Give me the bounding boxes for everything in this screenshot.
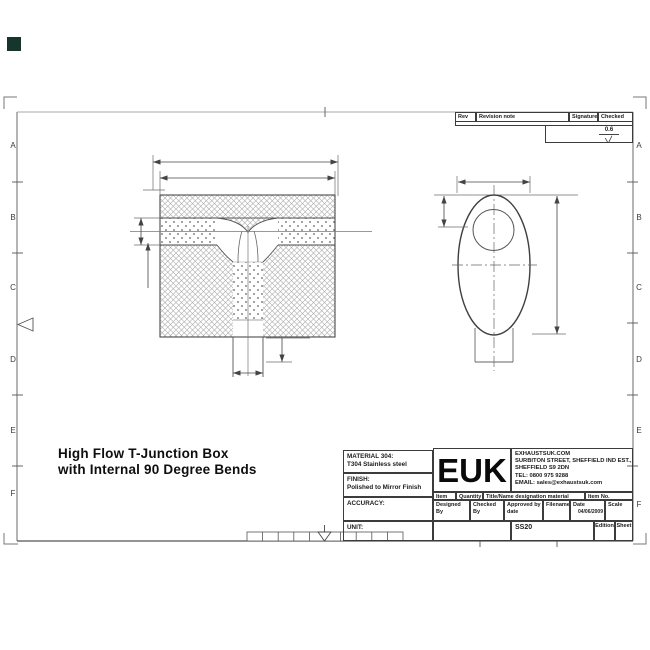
tolerance-box: 0.6 bbox=[545, 126, 633, 143]
date-cell: Date 04/06/2009 bbox=[570, 500, 605, 521]
drawing-number: SS20 bbox=[512, 522, 593, 531]
frame-letter-left-a: A bbox=[8, 141, 18, 150]
trim-mark-bottom-left bbox=[4, 533, 18, 544]
frame-letter-right-a: A bbox=[634, 141, 644, 150]
material-value: T304 Stainless steel bbox=[347, 461, 432, 469]
title-name-cell: Title/Name designation material dimensio… bbox=[483, 492, 585, 500]
date-label: Date bbox=[573, 502, 585, 508]
frame-letter-left-f: F bbox=[8, 489, 18, 498]
company-website: EXHAUSTSUK.COM bbox=[515, 451, 632, 458]
drawing-number-cell: SS20 bbox=[511, 521, 594, 541]
approved-by-cell: Approved by date bbox=[504, 500, 543, 521]
material-cell: MATERIAL 304: T304 Stainless steel bbox=[343, 450, 433, 473]
frame-letter-right-b: B bbox=[634, 213, 644, 222]
unit-label: UNIT: bbox=[347, 524, 432, 532]
company-logo: EUK bbox=[434, 449, 510, 492]
sheet-cell: Sheet bbox=[615, 521, 633, 541]
drawing-title: High Flow T-Junction Box with Internal 9… bbox=[58, 446, 257, 478]
company-address-cell: EXHAUSTSUK.COM SURBITON STREET, SHEFFIEL… bbox=[511, 448, 633, 492]
centering-triangle-left bbox=[18, 318, 33, 331]
company-city: SHEFFIELD S9 2DN bbox=[515, 465, 632, 472]
finish-value: Polished to Mirror Finish bbox=[347, 484, 432, 492]
drawing-sheet: A B C D E F A B C D E F High Flow T-Junc… bbox=[0, 0, 650, 650]
frame-letter-right-f: F bbox=[634, 500, 644, 509]
frame-letter-left-d: D bbox=[8, 355, 18, 364]
frame-letter-left-c: C bbox=[8, 283, 18, 292]
date-value: 04/06/2009 bbox=[578, 509, 603, 516]
finish-label: FINISH: bbox=[347, 476, 432, 484]
accuracy-cell: ACCURACY: bbox=[343, 497, 433, 521]
frame-letter-left-e: E bbox=[8, 426, 18, 435]
frame-letter-left-b: B bbox=[8, 213, 18, 222]
filename-cell: Filename bbox=[543, 500, 570, 521]
company-email: EMAIL: sales@exhaustsuk.com bbox=[515, 480, 632, 487]
finish-cell: FINISH: Polished to Mirror Finish bbox=[343, 473, 433, 497]
scale-cell: Scale bbox=[605, 500, 633, 521]
edition-cell: Edition bbox=[594, 521, 615, 541]
item-no-cell: Item No bbox=[433, 492, 456, 500]
frame-letter-right-c: C bbox=[634, 283, 644, 292]
trim-mark-bottom-right bbox=[633, 533, 646, 544]
company-street: SURBITON STREET, SHEFFIELD IND EST., bbox=[515, 458, 632, 465]
t-junction-section-view bbox=[130, 195, 372, 377]
quantity-cell: Quantity bbox=[456, 492, 483, 500]
technical-drawing-canvas bbox=[0, 0, 650, 650]
drawing-title-line1: High Flow T-Junction Box bbox=[58, 446, 257, 462]
revision-table: Rev No Revision note Signature Checked 0… bbox=[455, 112, 633, 143]
material-label: MATERIAL 304: bbox=[347, 453, 432, 461]
surface-finish-value: 0.6 bbox=[599, 127, 619, 135]
frame-letter-right-e: E bbox=[634, 426, 644, 435]
company-phone: TEL: 0800 975 9288 bbox=[515, 473, 632, 480]
drawing-title-line2: with Internal 90 Degree Bends bbox=[58, 462, 257, 478]
checked-by-cell: Checked By bbox=[470, 500, 504, 521]
surface-finish-symbol: 0.6 bbox=[599, 127, 619, 143]
rev-no-header: Rev No bbox=[455, 112, 476, 122]
unit-cell: UNIT: bbox=[343, 521, 433, 541]
title-block: MATERIAL 304: T304 Stainless steel FINIS… bbox=[343, 448, 633, 541]
trim-mark-top-right bbox=[633, 97, 646, 109]
signature-header: Signature bbox=[569, 112, 598, 122]
oval-side-view bbox=[434, 176, 578, 371]
revision-note-header: Revision note bbox=[476, 112, 569, 122]
checked-header: Checked bbox=[598, 112, 633, 122]
inlet-circle bbox=[473, 210, 514, 251]
frame-letter-right-d: D bbox=[634, 355, 644, 364]
accuracy-label: ACCURACY: bbox=[347, 500, 432, 508]
trim-mark-top-left bbox=[4, 97, 17, 109]
logo-cell: EUK bbox=[433, 448, 511, 492]
item-no2-cell: Item No. bbox=[585, 492, 633, 500]
designed-by-cell: Designed By bbox=[433, 500, 470, 521]
empty-cell bbox=[433, 521, 511, 541]
